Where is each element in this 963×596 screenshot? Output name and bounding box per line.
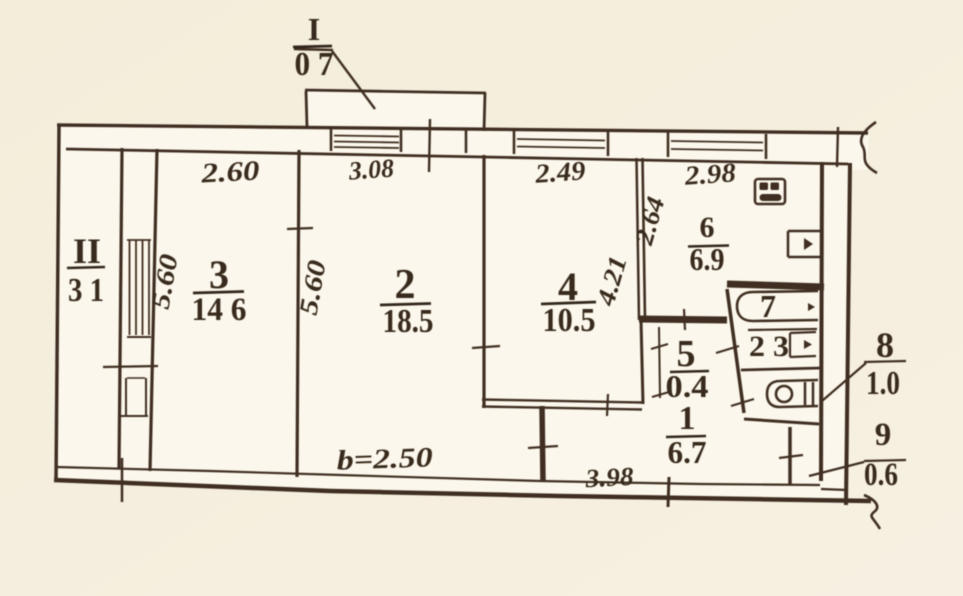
svg-text:6.7: 6.7 — [668, 434, 707, 470]
svg-text:2.60: 2.60 — [200, 156, 261, 190]
svg-text:3.08: 3.08 — [347, 153, 395, 185]
svg-text:II: II — [73, 231, 101, 271]
svg-text:6: 6 — [700, 211, 715, 244]
svg-text:3.98: 3.98 — [584, 462, 635, 494]
svg-text:2.98: 2.98 — [683, 157, 738, 191]
svg-text:b=2.50: b=2.50 — [336, 442, 433, 476]
svg-text:2.49: 2.49 — [533, 155, 587, 189]
svg-text:14 6: 14 6 — [192, 292, 247, 328]
svg-text:8: 8 — [876, 325, 894, 365]
svg-text:2 3: 2 3 — [749, 330, 789, 363]
svg-text:0 7: 0 7 — [295, 46, 334, 83]
svg-text:0.6: 0.6 — [864, 457, 898, 493]
svg-text:2: 2 — [395, 262, 416, 308]
svg-text:3: 3 — [209, 252, 229, 297]
svg-text:0.4: 0.4 — [666, 368, 709, 404]
svg-text:1.0: 1.0 — [866, 365, 900, 402]
svg-text:7: 7 — [760, 288, 776, 324]
svg-text:18.5: 18.5 — [383, 303, 434, 340]
svg-text:1: 1 — [679, 400, 696, 437]
svg-text:3 1: 3 1 — [68, 272, 104, 309]
svg-text:I: I — [308, 11, 320, 47]
svg-text:9: 9 — [875, 417, 892, 453]
svg-text:10.5: 10.5 — [543, 302, 596, 339]
